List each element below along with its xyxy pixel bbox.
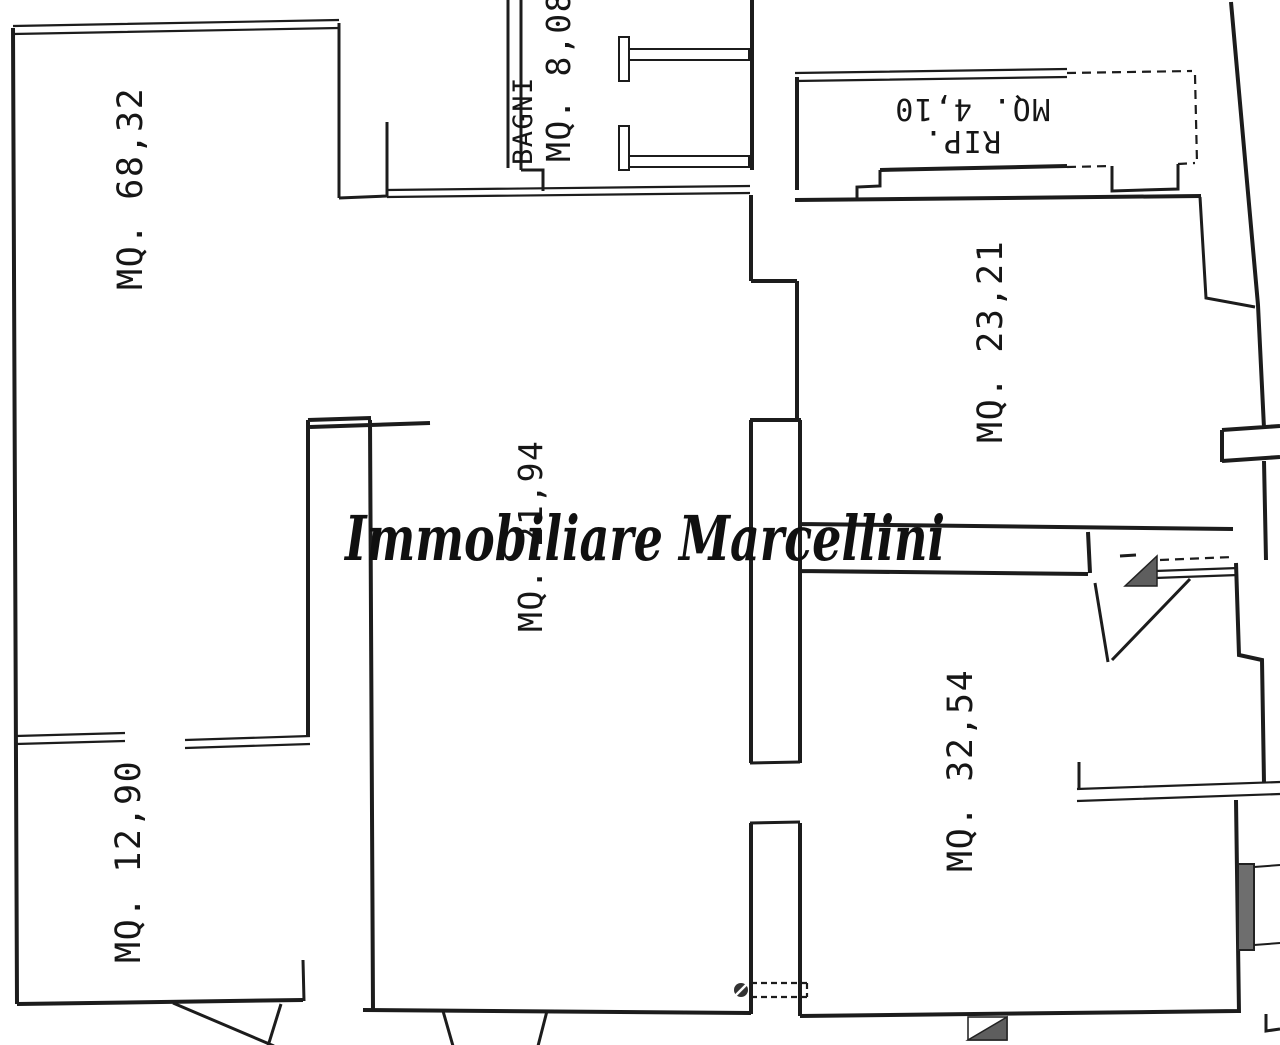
room-label-right: MQ. 23,21: [971, 240, 1011, 443]
level-marker-triangle-bottom: [968, 1017, 1007, 1040]
walls-double-line: [13, 20, 1280, 801]
room-label-bottom-left: MQ. 12,90: [109, 760, 149, 963]
agency-watermark: Immobiliare Marcellini: [344, 502, 945, 575]
radiator-symbol: [1238, 864, 1280, 950]
room-label-bagni-area: MQ. 8,08: [539, 0, 578, 162]
walls-dashed: [1067, 71, 1233, 560]
room-label-bagni-name: BAGNI: [508, 76, 539, 165]
floor-plan-canvas: MQ. 68,32 BAGNI MQ. 8,08 MQ. 4,10 RIP. M…: [0, 0, 1280, 1045]
floor-plan-page: MQ. 68,32 BAGNI MQ. 8,08 MQ. 4,10 RIP. M…: [0, 0, 1280, 1045]
bathroom-partition-walls: [619, 37, 749, 170]
room-label-bottom-right: MQ. 32,54: [941, 669, 981, 872]
room-label-large: MQ. 68,32: [111, 87, 151, 290]
column-symbol: [734, 983, 748, 997]
level-marker-triangle-entry: [1125, 556, 1157, 586]
room-label-rip-area: MQ. 4,10: [894, 91, 1051, 126]
room-label-rip-name: RIP.: [923, 123, 1001, 158]
